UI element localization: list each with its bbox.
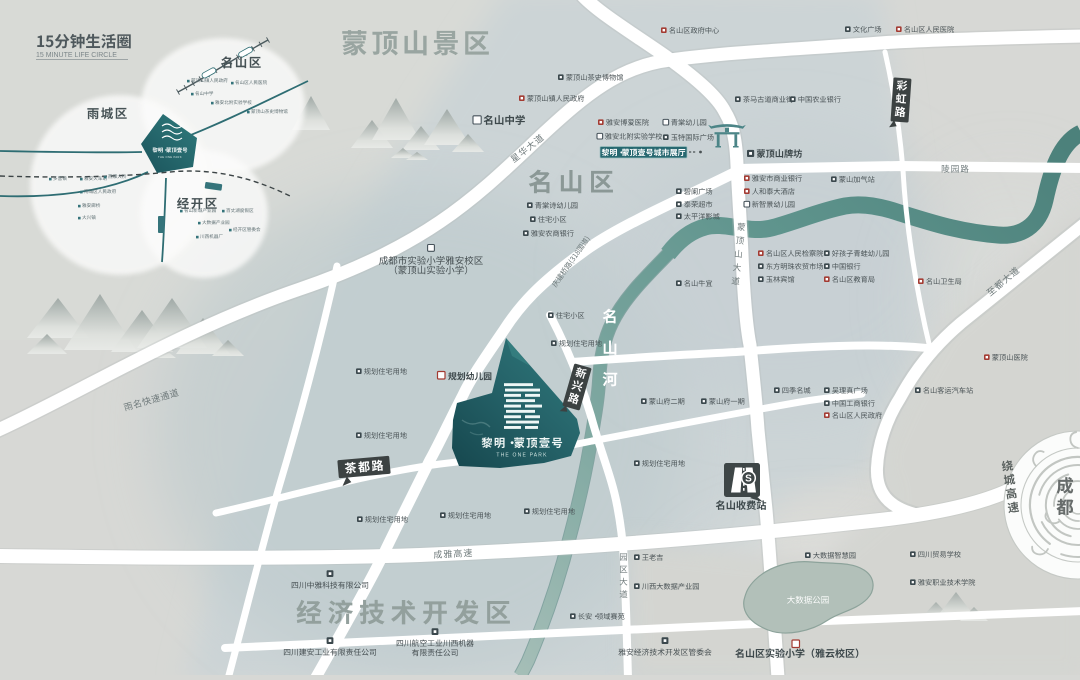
svg-text:15 MINUTE LIFE CIRCLE: 15 MINUTE LIFE CIRCLE: [36, 52, 117, 59]
svg-text:THE ONE PARK: THE ONE PARK: [496, 453, 547, 459]
svg-text:THE ONE PARK: THE ONE PARK: [158, 155, 182, 159]
svg-text:S: S: [745, 474, 752, 485]
